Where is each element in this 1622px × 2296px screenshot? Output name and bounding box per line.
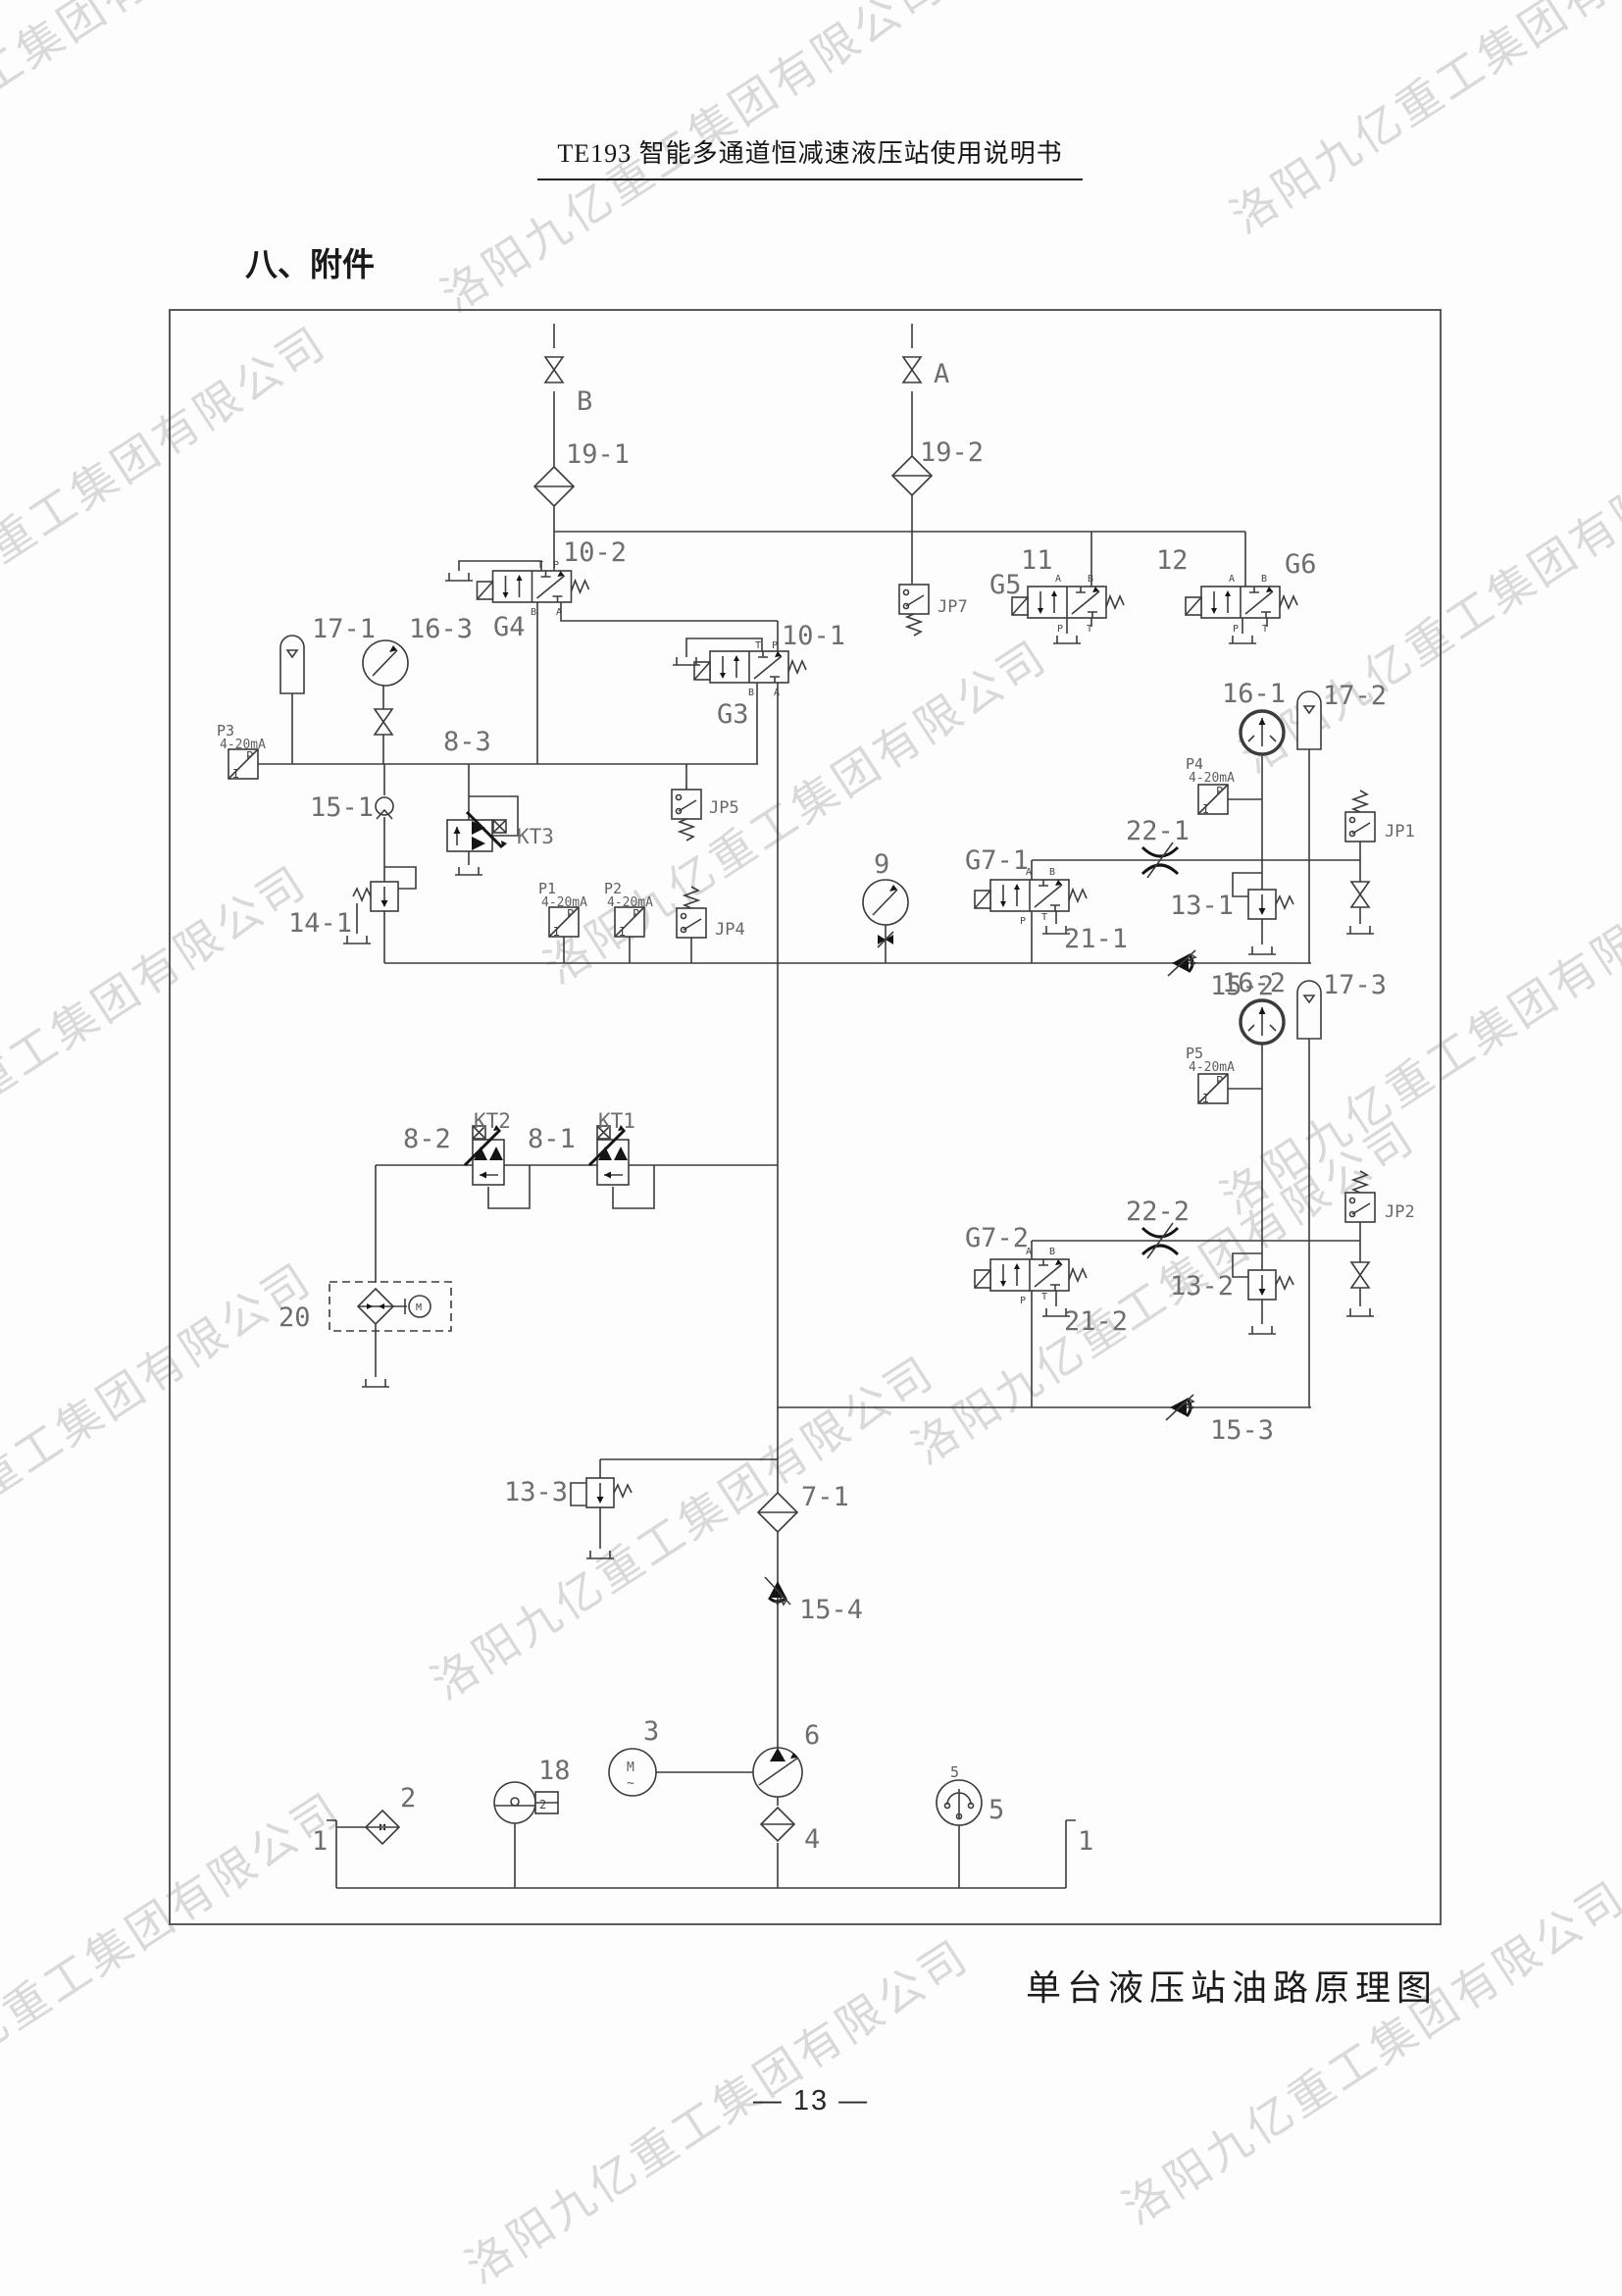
port-letter-p: P <box>1020 916 1026 927</box>
level-gauge-2: 2 <box>539 1798 546 1811</box>
temp-sensor-5 <box>937 1780 982 1825</box>
label-jp2: JP2 <box>1385 1202 1415 1222</box>
label-11: 11 <box>1021 545 1053 576</box>
label-kt1: KT1 <box>598 1109 635 1133</box>
label-kt2: KT2 <box>474 1109 511 1133</box>
port-letter-t: T <box>537 560 543 571</box>
transducer-p-letter: P <box>633 907 639 921</box>
label-jp4: JP4 <box>715 920 745 940</box>
label-p2-range: 4-20mA <box>607 895 653 910</box>
shutoff-valve-A <box>903 357 921 383</box>
pipes-throttle-bus <box>376 1165 778 1377</box>
port-letter-b: B <box>1049 867 1055 878</box>
port-letter-t: T <box>1041 1292 1047 1302</box>
label-g7-1: G7-1 <box>965 845 1029 876</box>
label-p4-range: 4-20mA <box>1189 771 1235 786</box>
port-letter-t: T <box>1087 624 1092 635</box>
transducer-i-letter: I <box>553 925 560 939</box>
label-tank-port-1-right: 1 <box>1078 1826 1093 1857</box>
label-16-3: 16-3 <box>409 614 473 644</box>
label-kt3: KT3 <box>517 825 554 848</box>
contact-gauge-16-1 <box>1241 711 1284 754</box>
label-port-a: A <box>934 359 949 389</box>
label-g7-2: G7-2 <box>965 1223 1029 1253</box>
level-gauge-18 <box>494 1782 558 1823</box>
label-21-1: 21-1 <box>1064 924 1128 954</box>
pressure-gauge-9 <box>863 880 908 925</box>
port-letter-a: A <box>774 688 780 698</box>
solenoid-valve-g4 <box>478 571 589 602</box>
transducer-i-letter: I <box>232 767 239 781</box>
solenoid-valve-g3 <box>694 651 806 683</box>
manual-page: { "page": { "header_title": "TE193 智能多通道… <box>0 0 1622 2201</box>
suction-filter-4 <box>761 1808 794 1841</box>
port-letter-b: B <box>1261 574 1267 585</box>
pipes-pump-section <box>327 682 1076 1888</box>
label-14-1: 14-1 <box>288 908 352 939</box>
solenoid-valve-g7-1 <box>975 880 1087 911</box>
port-letter-b: B <box>748 688 754 698</box>
transducer-p-letter: P <box>1216 1074 1223 1088</box>
label-10-2: 10-2 <box>563 537 627 568</box>
port-letter-a: A <box>1026 1247 1032 1257</box>
label-3: 3 <box>643 1716 659 1747</box>
check-valve-15-3 <box>1166 1395 1193 1420</box>
label-p1-range: 4-20mA <box>541 895 587 910</box>
label-p3-range: 4-20mA <box>220 738 266 752</box>
check-valve-15-1 <box>376 797 393 819</box>
label-13-2: 13-2 <box>1170 1271 1234 1301</box>
label-10-1: 10-1 <box>782 621 845 651</box>
label-7-1: 7-1 <box>801 1482 849 1512</box>
pipe-network <box>258 324 1360 1888</box>
transducer-i-letter: I <box>1202 1092 1209 1105</box>
label-4: 4 <box>804 1824 820 1855</box>
check-valve-15-2 <box>1168 950 1195 976</box>
port-letter-b: B <box>1088 574 1093 585</box>
needle-valve-jp2 <box>1351 1262 1369 1288</box>
shutoff-valve-8-3 <box>375 709 392 735</box>
hydraulic-schematic: B 19-1 A 19-2 10-2 G4 10-1 G3 11 G5 12 G… <box>0 0 1622 2201</box>
relief-valve-14-1 <box>353 882 398 911</box>
page-number: — 13 — <box>0 2085 1622 2117</box>
pressure-switch-jp5 <box>672 790 701 841</box>
label-8-3: 8-3 <box>443 727 491 757</box>
label-20: 20 <box>279 1302 311 1333</box>
label-22-2: 22-2 <box>1126 1197 1190 1227</box>
label-g3: G3 <box>717 699 749 730</box>
label-22-1: 22-1 <box>1126 816 1190 846</box>
pressure-gauge-16-3 <box>363 640 408 686</box>
check-valve-15-4 <box>765 1577 790 1605</box>
port-letter-b: B <box>531 607 536 618</box>
label-6: 6 <box>804 1720 820 1751</box>
label-16-2: 16-2 <box>1222 968 1286 998</box>
label-15-1: 15-1 <box>310 792 374 823</box>
transducer-i-letter: I <box>1202 802 1209 816</box>
label-5: 5 <box>988 1795 1004 1825</box>
relief-valve-13-3 <box>586 1478 632 1507</box>
component-labels: B 19-1 A 19-2 10-2 G4 10-1 G3 11 G5 12 G… <box>217 359 1415 1857</box>
header-title: TE193 智能多通道恒减速液压站使用说明书 <box>537 133 1083 180</box>
label-19-1: 19-1 <box>566 439 630 470</box>
solenoid-valve-g7-2 <box>975 1259 1087 1291</box>
label-16-1: 16-1 <box>1222 679 1286 709</box>
port-letter-p: P <box>772 640 778 651</box>
shutoff-valve-B <box>545 357 563 383</box>
label-2: 2 <box>400 1783 416 1813</box>
label-17-2: 17-2 <box>1323 681 1387 711</box>
port-letter-t: T <box>1041 912 1047 923</box>
transducer-p-letter: P <box>246 749 253 763</box>
circ-motor-m-letter: M <box>416 1302 422 1313</box>
solenoid-valve-g5 <box>1012 587 1124 618</box>
throttle-valve-kt3 <box>447 812 507 851</box>
label-port-b: B <box>577 386 592 417</box>
label-tank-port-1-left: 1 <box>312 1826 328 1857</box>
port-letter-a: A <box>1026 867 1032 878</box>
needle-valve-jp1 <box>1351 882 1369 907</box>
label-13-3: 13-3 <box>504 1477 568 1507</box>
port-letter-p: P <box>553 560 559 571</box>
label-5-small: 5 <box>950 1763 959 1781</box>
filter-7-1 <box>758 1493 797 1532</box>
label-18: 18 <box>538 1756 571 1786</box>
label-jp1: JP1 <box>1385 822 1415 842</box>
label-g4: G4 <box>493 612 526 642</box>
throttle-valve-kt2 <box>465 1125 504 1185</box>
port-letter-p: P <box>1233 624 1239 635</box>
accumulator-17-2 <box>1297 691 1321 749</box>
pressure-switch-jp2 <box>1345 1171 1375 1222</box>
label-12: 12 <box>1156 545 1189 576</box>
label-13-1: 13-1 <box>1170 891 1234 921</box>
transducer-p-letter: P <box>567 907 574 921</box>
label-8-2: 8-2 <box>403 1124 451 1154</box>
contact-gauge-16-2 <box>1241 1000 1284 1044</box>
label-8-1: 8-1 <box>528 1124 576 1154</box>
label-g6: G6 <box>1285 549 1317 580</box>
throttle-valve-kt1 <box>589 1125 629 1185</box>
relief-valve-13-1 <box>1248 890 1293 919</box>
air-filter-2 <box>366 1811 399 1844</box>
label-jp5: JP5 <box>709 798 739 818</box>
label-jp7: JP7 <box>938 597 968 617</box>
main-pump-6 <box>753 1748 802 1797</box>
filter-19-1 <box>534 467 574 506</box>
label-17-1: 17-1 <box>312 614 376 644</box>
accumulator-17-1 <box>280 636 304 693</box>
motor-m-letter: M <box>627 1760 634 1775</box>
pressure-switch-jp1 <box>1345 791 1375 842</box>
port-letter-a: A <box>1229 574 1235 585</box>
pressure-switch-jp7 <box>899 585 929 636</box>
diagram-caption: 单台液压站油路原理图 <box>1026 1960 1438 2011</box>
section-title: 八、附件 <box>245 238 375 285</box>
label-g5: G5 <box>989 570 1022 600</box>
port-letter-b: B <box>1049 1247 1055 1257</box>
port-letter-t: T <box>1262 624 1268 635</box>
port-letter-t: T <box>755 640 761 651</box>
port-letter-a: A <box>1055 574 1061 585</box>
label-15-3: 15-3 <box>1210 1415 1274 1446</box>
label-21-2: 21-2 <box>1064 1306 1128 1337</box>
accumulator-17-3 <box>1297 981 1321 1039</box>
motor-ac-symbol: ~ <box>627 1776 634 1791</box>
port-letter-p: P <box>1020 1296 1026 1306</box>
pipes-lower-brake <box>778 1038 1360 1407</box>
relief-valve-13-2 <box>1248 1270 1293 1300</box>
label-19-2: 19-2 <box>920 437 984 468</box>
transducer-i-letter: I <box>619 925 626 939</box>
label-9: 9 <box>874 849 889 880</box>
label-17-3: 17-3 <box>1323 970 1387 1000</box>
pressure-switch-jp4 <box>677 887 706 938</box>
circulation-unit-20 <box>329 1282 451 1331</box>
solenoid-valve-g6 <box>1186 587 1297 618</box>
transducer-p-letter: P <box>1216 785 1223 798</box>
port-letter-a: A <box>556 607 562 618</box>
label-p5-range: 4-20mA <box>1189 1060 1235 1075</box>
port-letter-p: P <box>1057 624 1063 635</box>
label-15-4: 15-4 <box>799 1595 863 1625</box>
